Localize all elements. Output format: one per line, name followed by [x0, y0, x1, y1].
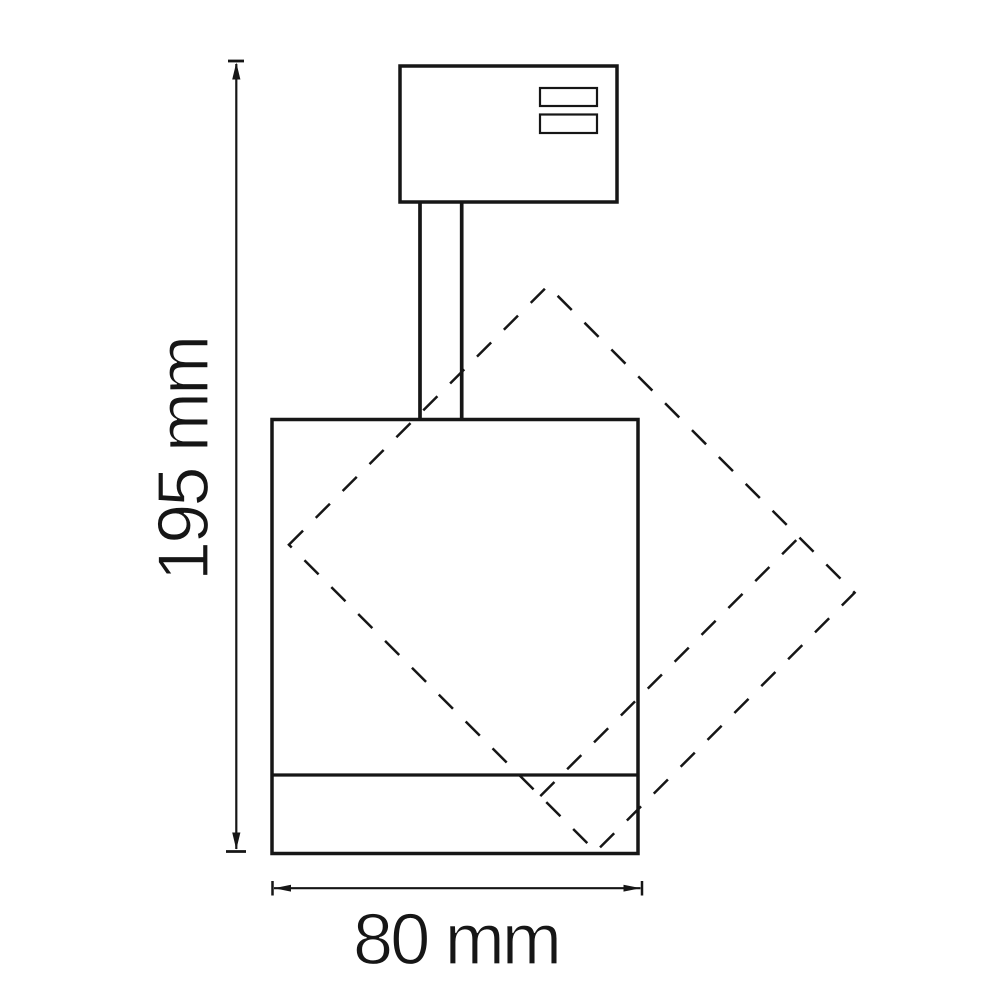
svg-text:80 mm: 80 mm [353, 900, 559, 980]
svg-text:195 mm: 195 mm [144, 338, 224, 581]
